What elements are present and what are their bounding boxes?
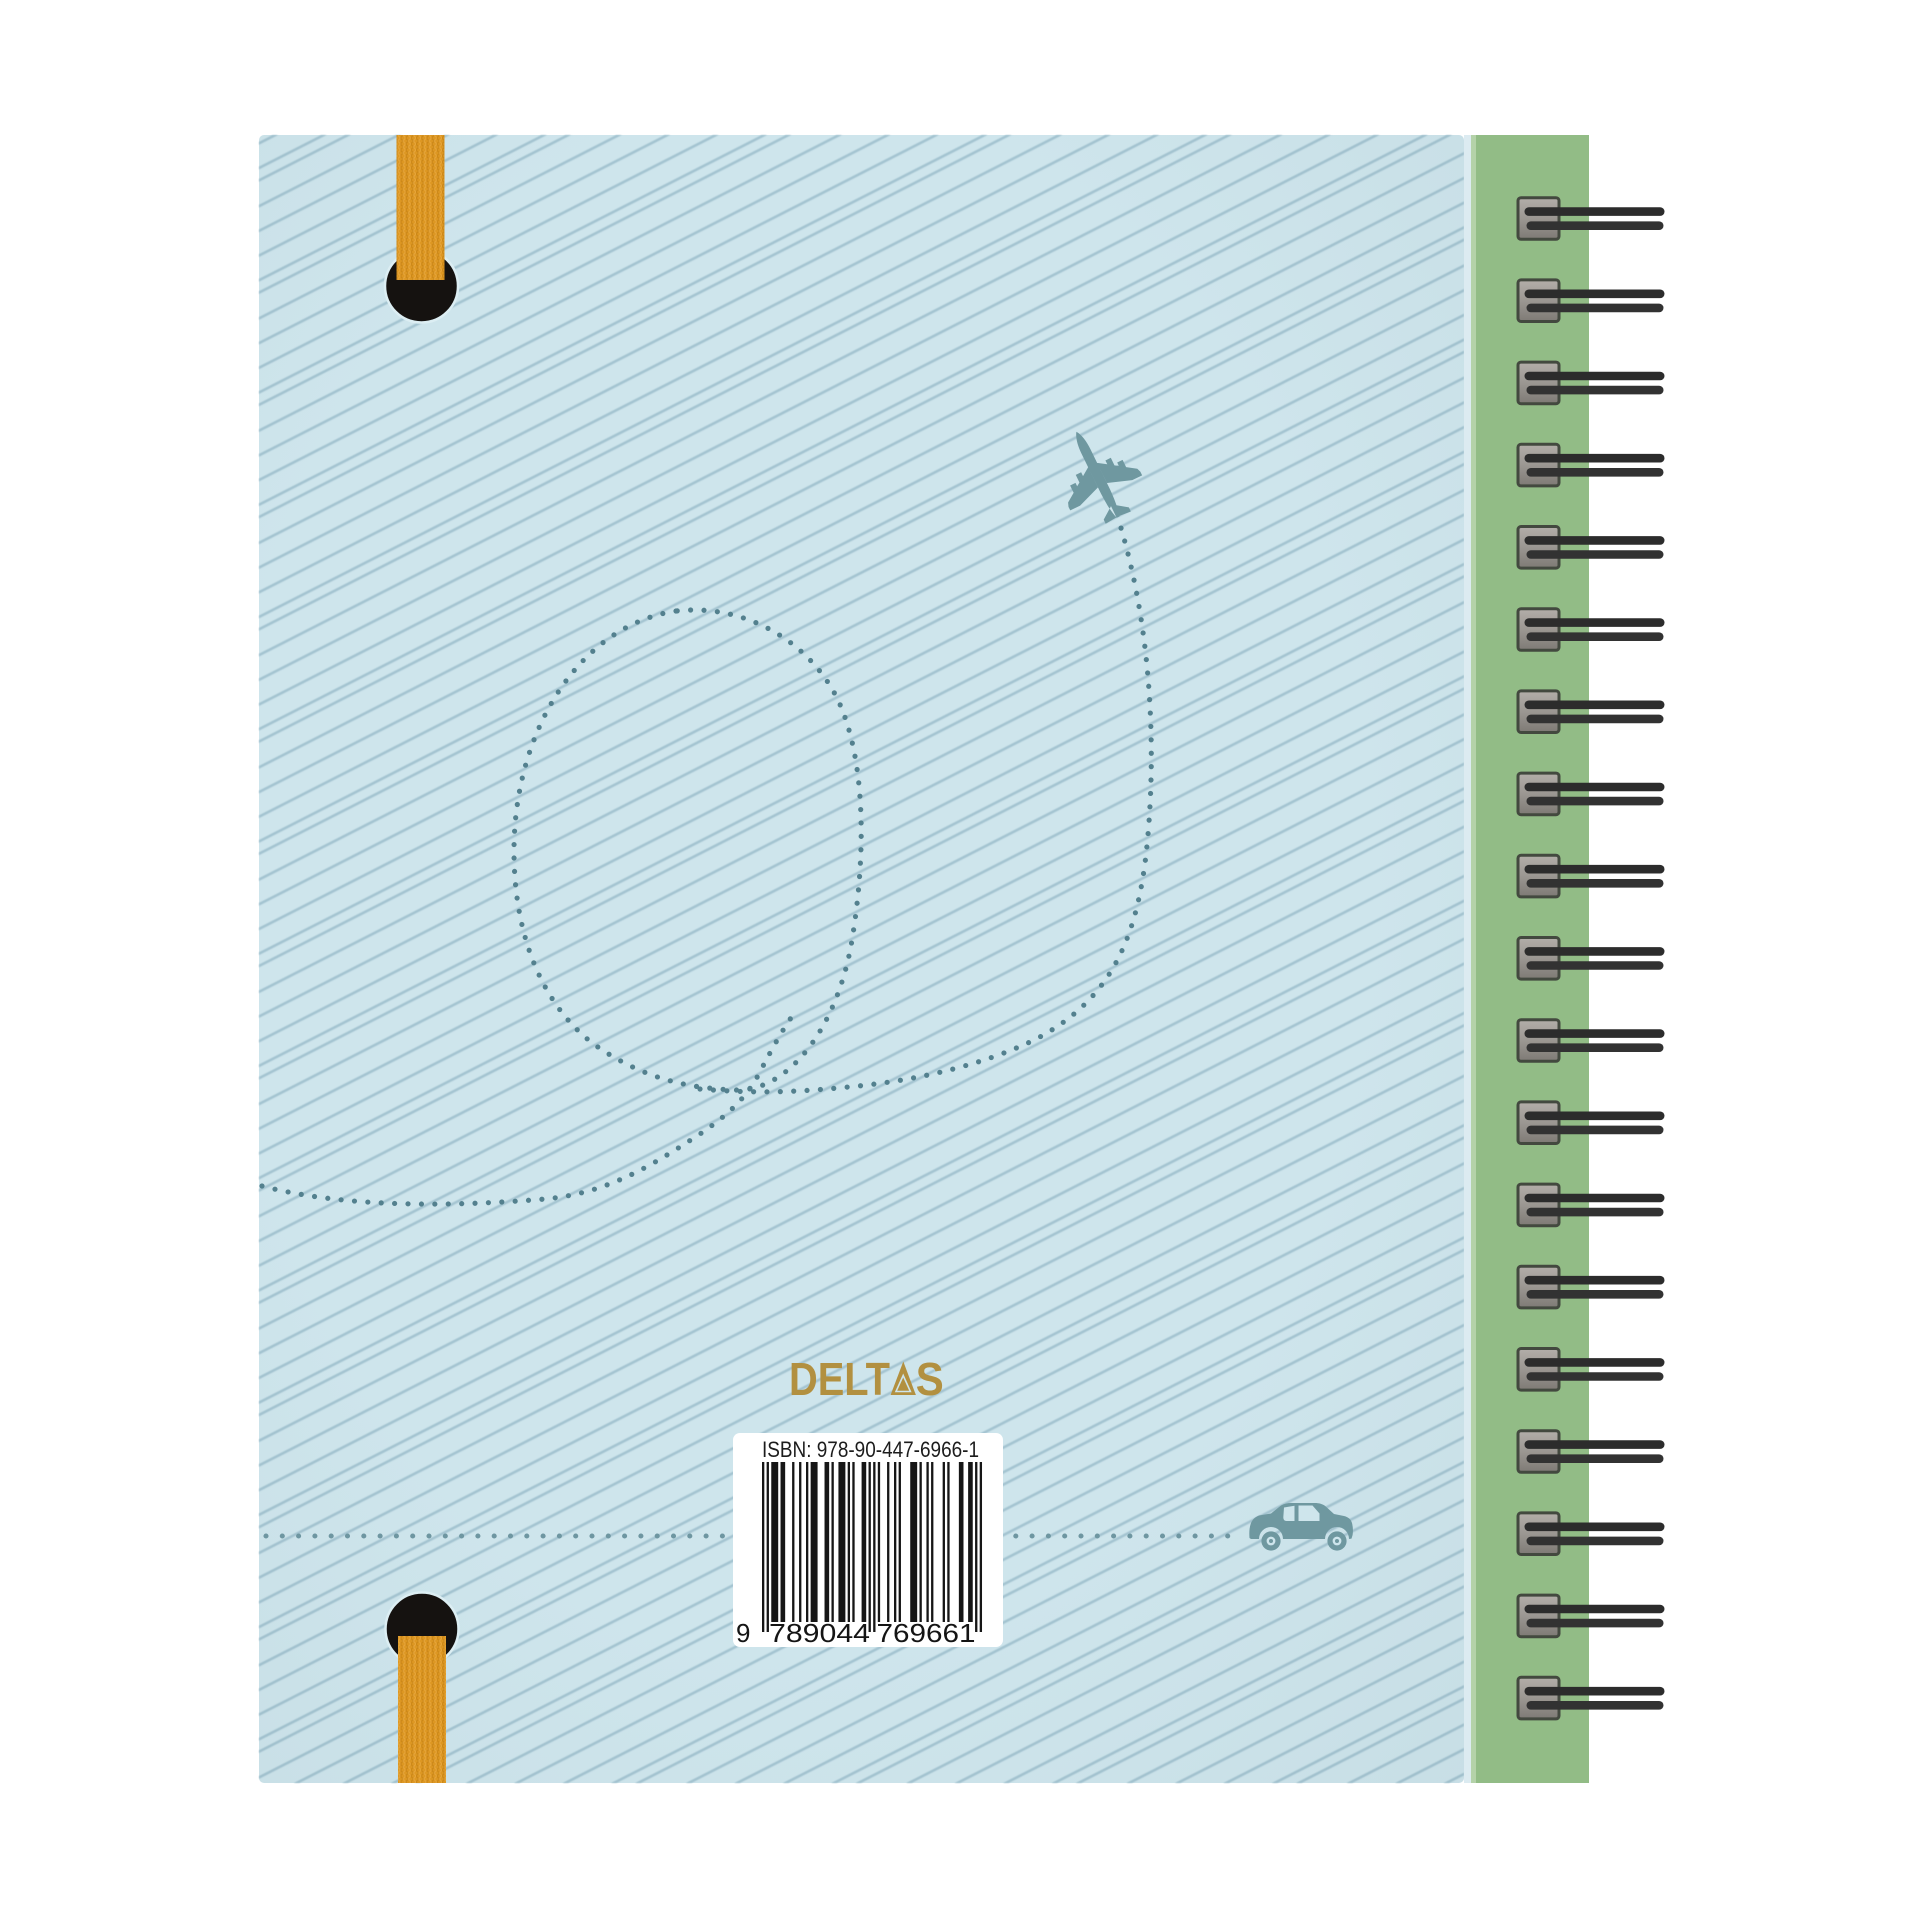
svg-text:ISBN: 978-90-447-6966-1: ISBN: 978-90-447-6966-1 bbox=[762, 1437, 979, 1462]
svg-text:769661: 769661 bbox=[877, 1618, 976, 1648]
svg-text:DELT: DELT bbox=[789, 1353, 890, 1405]
svg-text:9: 9 bbox=[736, 1618, 750, 1648]
svg-text:S: S bbox=[916, 1353, 944, 1405]
svg-text:789044: 789044 bbox=[769, 1618, 870, 1648]
